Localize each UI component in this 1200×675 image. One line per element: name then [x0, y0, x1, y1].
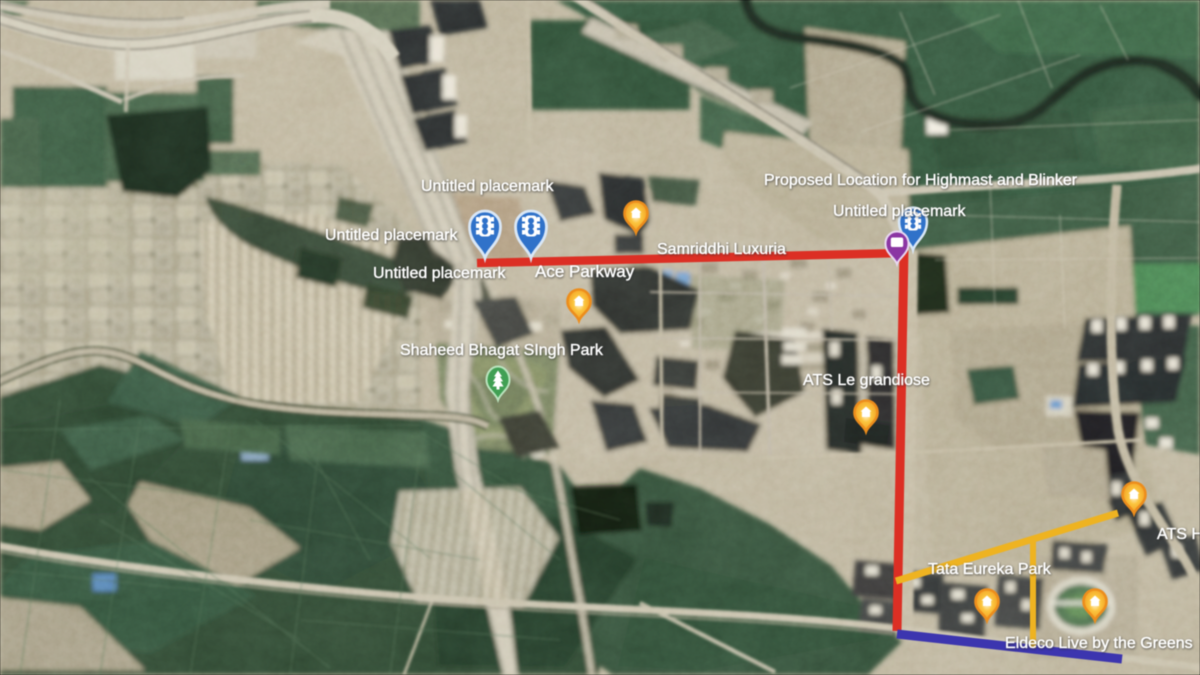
svg-text:Samriddhi Luxuria: Samriddhi Luxuria	[657, 241, 786, 258]
svg-text:Untitled placemark: Untitled placemark	[373, 265, 507, 282]
svg-text:ATS H: ATS H	[1157, 526, 1200, 543]
svg-text:Ace Parkway: Ace Parkway	[535, 262, 635, 281]
svg-text:Proposed Location for Highmast: Proposed Location for Highmast and Blink…	[764, 172, 1078, 189]
svg-text:Untitled placemark: Untitled placemark	[833, 203, 967, 220]
svg-text:Tata Eureka Park: Tata Eureka Park	[928, 561, 1052, 578]
svg-text:Shaheed Bhagat SIngh Park: Shaheed Bhagat SIngh Park	[400, 342, 604, 359]
svg-text:Untitled placemark: Untitled placemark	[325, 227, 459, 244]
svg-text:Eldeco Live by the Greens: Eldeco Live by the Greens	[1005, 635, 1193, 652]
svg-text:Untitled placemark: Untitled placemark	[421, 178, 555, 195]
svg-text:ATS Le grandiose: ATS Le grandiose	[803, 372, 930, 389]
